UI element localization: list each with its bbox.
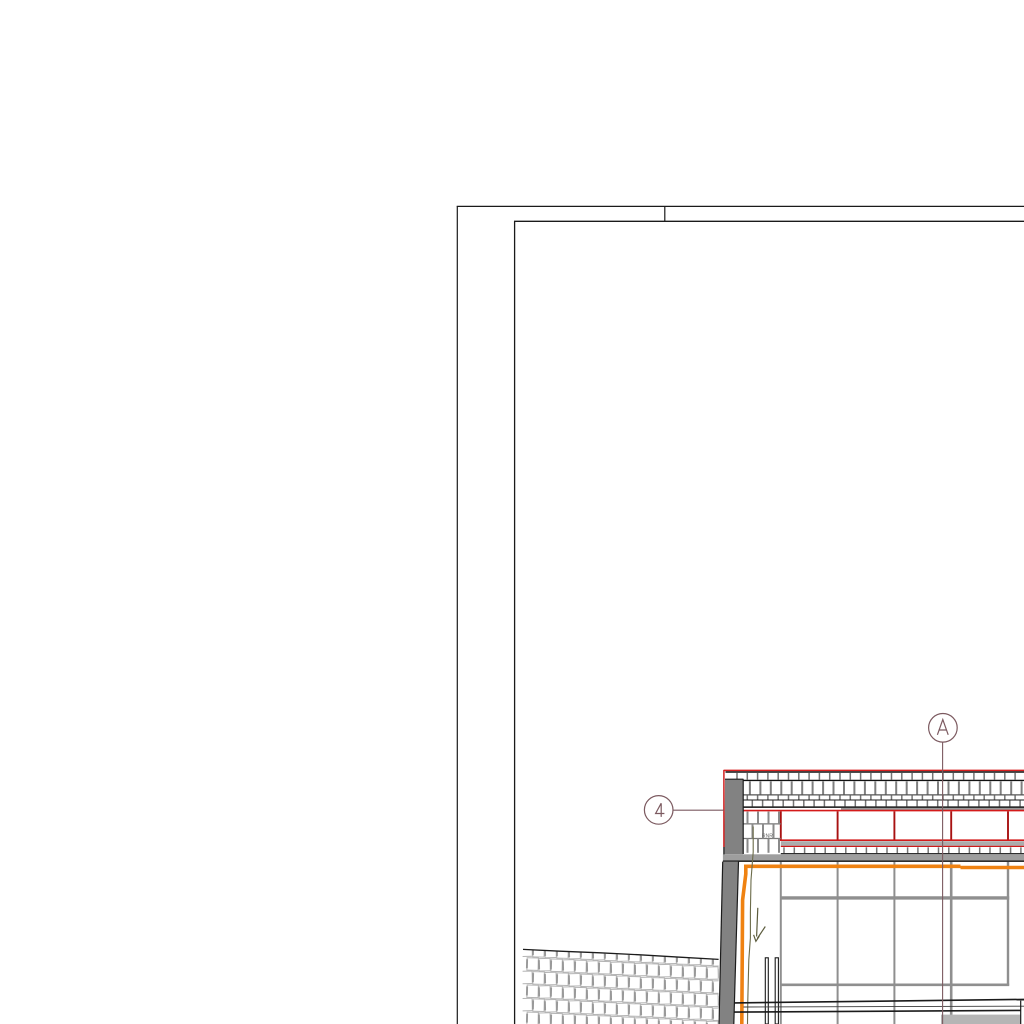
svg-text:RNR: RNR <box>762 834 773 840</box>
